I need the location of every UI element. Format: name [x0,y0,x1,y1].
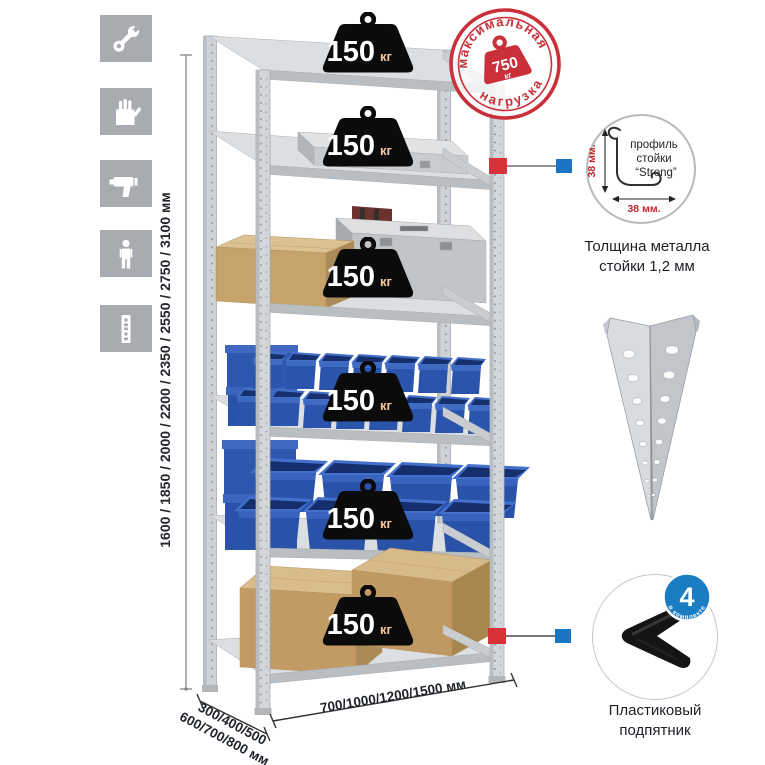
profile-dim-vertical: 38 мм. [588,144,598,177]
height-dimension-label: 1600 / 1850 / 2000 / 2200 / 2350 / 2550 … [157,192,173,547]
badge-ring [362,363,374,375]
included-count: 4 [679,582,694,612]
badge-unit: кг [380,622,393,637]
badge-value: 150 [327,261,375,293]
vertical-dim-arrow [602,129,608,193]
post-profile-icon [109,312,143,346]
horizontal-dim-arrow [612,196,676,202]
badge-unit: кг [380,398,393,413]
feature-tile-person [100,230,152,277]
callout-top [489,158,572,174]
rack-post-front-right [489,85,506,683]
blue-marker-top [556,159,572,173]
profile-label-line2: стойки [636,153,671,165]
badge-unit: кг [380,274,393,289]
callout-bottom [488,628,571,644]
profile-caption-line2: стойки 1,2 мм [566,257,728,277]
badge-ring [362,14,374,26]
red-marker-top [489,158,507,174]
load-badge-5: 150 кг [318,479,418,545]
storage-bin [450,357,486,394]
load-badge-4: 150 кг [318,361,418,427]
profile-label-line3: “Strong” [635,167,677,179]
load-badge-6: 150 кг [318,585,418,651]
badge-ring [362,108,374,120]
badge-ring [362,481,374,493]
feature-tile-post [100,305,152,352]
profile-dim-horizontal: 38 мм. [627,203,660,215]
badge-value: 150 [327,609,375,641]
foot-caption-line1: Пластиковый [574,701,736,721]
person-icon [109,237,143,271]
blue-marker-bottom [555,629,571,643]
rack-post-front-left [255,70,272,715]
profile-cross-section-drawing: 38 мм. 38 мм. профиль стойки “Strong” [588,116,694,222]
badge-ring [362,587,374,599]
feature-tile-drill [100,160,152,207]
included-count-badge: 4 в комплекте [660,570,714,624]
drill-icon [109,167,143,201]
feature-tile-gloves [100,88,152,135]
badge-value: 150 [327,385,375,417]
product-infographic: 150 кг 150 кг 150 кг 150 кг 150 кг 150 к… [0,0,765,765]
max-load-stamp: максимальная нагрузка 750 кг [439,1,571,127]
foot-caption-line2: подпятник [574,721,736,741]
load-badge-3: 150 кг [318,237,418,303]
badge-unit: кг [380,49,393,64]
profile-caption-line1: Толщина металла [566,237,728,257]
storage-bin [285,352,321,389]
badge-value: 150 [327,503,375,535]
badge-value: 150 [327,36,375,68]
load-badge-1: 150 кг [318,12,418,78]
angle-post-image [596,302,704,534]
red-marker-bottom [488,628,506,644]
profile-label-line1: профиль [630,139,678,151]
wrench-icon [109,22,143,56]
foot-caption: Пластиковый подпятник [574,701,736,742]
badge-unit: кг [380,516,393,531]
feature-tile-assembly [100,15,152,62]
gloves-icon [109,95,143,129]
badge-ring [362,239,374,251]
profile-detail-circle: 38 мм. 38 мм. профиль стойки “Strong” [586,114,696,224]
height-dimension-line [180,55,192,691]
load-badge-2: 150 кг [318,106,418,172]
profile-caption: Толщина металла стойки 1,2 мм [566,237,728,278]
badge-unit: кг [380,143,393,158]
badge-value: 150 [327,130,375,162]
